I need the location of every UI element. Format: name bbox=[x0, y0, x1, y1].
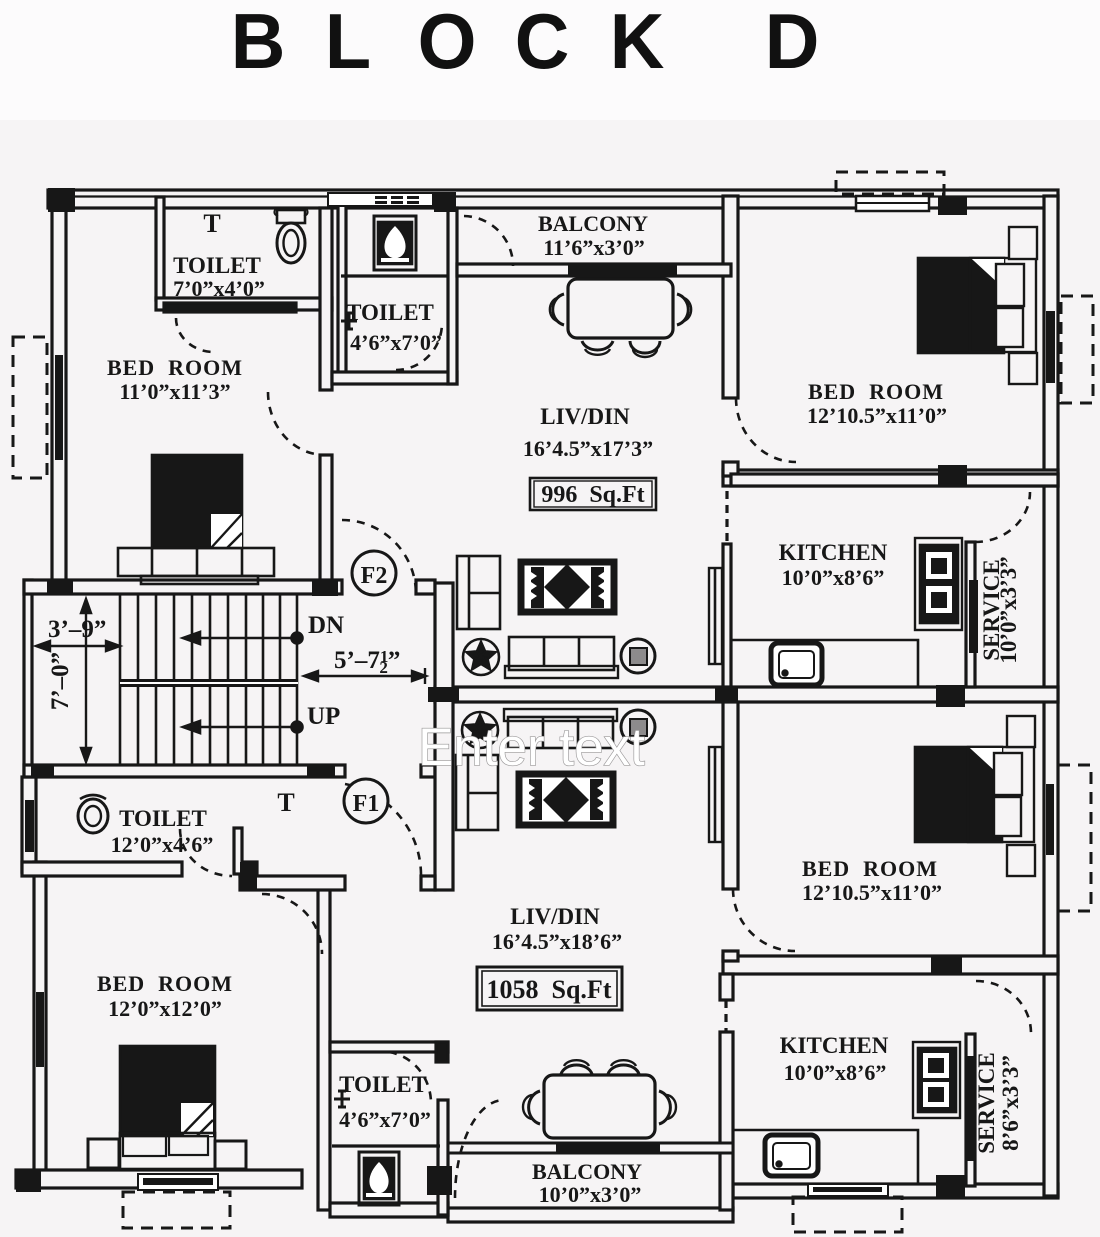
svg-text:7’–0”: 7’–0” bbox=[47, 652, 74, 710]
svg-text:11’0”x11’3”: 11’0”x11’3” bbox=[119, 379, 230, 404]
svg-text:TOILET: TOILET bbox=[339, 1072, 427, 1097]
svg-text:B: B bbox=[231, 0, 286, 85]
svg-text:C: C bbox=[515, 0, 570, 85]
svg-text:KITCHEN: KITCHEN bbox=[779, 540, 888, 565]
svg-text:10’0”x3’3”: 10’0”x3’3” bbox=[996, 556, 1021, 663]
svg-text:BED ROOM: BED ROOM bbox=[97, 971, 233, 996]
svg-text:12’10.5”x11’0”: 12’10.5”x11’0” bbox=[807, 403, 947, 428]
svg-text:L: L bbox=[325, 0, 371, 85]
svg-text:11’6”x3’0”: 11’6”x3’0” bbox=[543, 235, 644, 260]
svg-text:10’0”x3’0”: 10’0”x3’0” bbox=[539, 1182, 642, 1207]
svg-text:KITCHEN: KITCHEN bbox=[780, 1033, 889, 1058]
svg-text:O: O bbox=[418, 0, 477, 85]
svg-text:BED ROOM: BED ROOM bbox=[107, 355, 243, 380]
svg-text:UP: UP bbox=[307, 703, 340, 730]
svg-text:4’6”x7’0”: 4’6”x7’0” bbox=[350, 330, 442, 355]
svg-text:K: K bbox=[610, 0, 665, 85]
svg-text:BED ROOM: BED ROOM bbox=[808, 379, 944, 404]
svg-text:12’0”x12’0”: 12’0”x12’0” bbox=[108, 996, 222, 1021]
svg-text:12’0”x4’6”: 12’0”x4’6” bbox=[111, 832, 214, 857]
svg-text:10’0”x8’6”: 10’0”x8’6” bbox=[784, 1060, 887, 1085]
svg-text:1058 Sq.Ft: 1058 Sq.Ft bbox=[487, 975, 612, 1004]
svg-text:BALCONY: BALCONY bbox=[532, 1159, 642, 1184]
svg-text:T: T bbox=[203, 209, 220, 238]
svg-text:12’10.5”x11’0”: 12’10.5”x11’0” bbox=[802, 880, 942, 905]
svg-text:F1: F1 bbox=[353, 791, 380, 817]
svg-text:TOILET: TOILET bbox=[173, 253, 261, 278]
svg-text:D: D bbox=[765, 0, 820, 85]
svg-text:LIV/DIN: LIV/DIN bbox=[510, 904, 600, 929]
svg-text:Enter text: Enter text bbox=[418, 718, 645, 777]
svg-text:7’0”x4’0”: 7’0”x4’0” bbox=[173, 276, 265, 301]
svg-text:8’6”x3’3”: 8’6”x3’3” bbox=[998, 1055, 1023, 1151]
svg-text:DN: DN bbox=[308, 612, 344, 639]
svg-text:SERVICE: SERVICE bbox=[974, 1052, 999, 1153]
svg-text:BALCONY: BALCONY bbox=[538, 211, 648, 236]
svg-text:16’4.5”x18’6”: 16’4.5”x18’6” bbox=[492, 929, 622, 954]
svg-text:4’6”x7’0”: 4’6”x7’0” bbox=[339, 1107, 431, 1132]
svg-text:BED ROOM: BED ROOM bbox=[802, 856, 938, 881]
svg-text:16’4.5”x17’3”: 16’4.5”x17’3” bbox=[523, 436, 653, 461]
svg-text:LIV/DIN: LIV/DIN bbox=[540, 404, 630, 429]
svg-text:3’–9”: 3’–9” bbox=[48, 616, 106, 643]
svg-text:10’0”x8’6”: 10’0”x8’6” bbox=[782, 565, 885, 590]
svg-text:T: T bbox=[277, 788, 294, 817]
svg-text:996 Sq.Ft: 996 Sq.Ft bbox=[541, 482, 644, 508]
svg-text:TOILET: TOILET bbox=[346, 300, 434, 325]
svg-text:5’–712”: 5’–712” bbox=[334, 647, 400, 677]
svg-text:F2: F2 bbox=[361, 563, 388, 589]
svg-text:TOILET: TOILET bbox=[119, 806, 207, 831]
